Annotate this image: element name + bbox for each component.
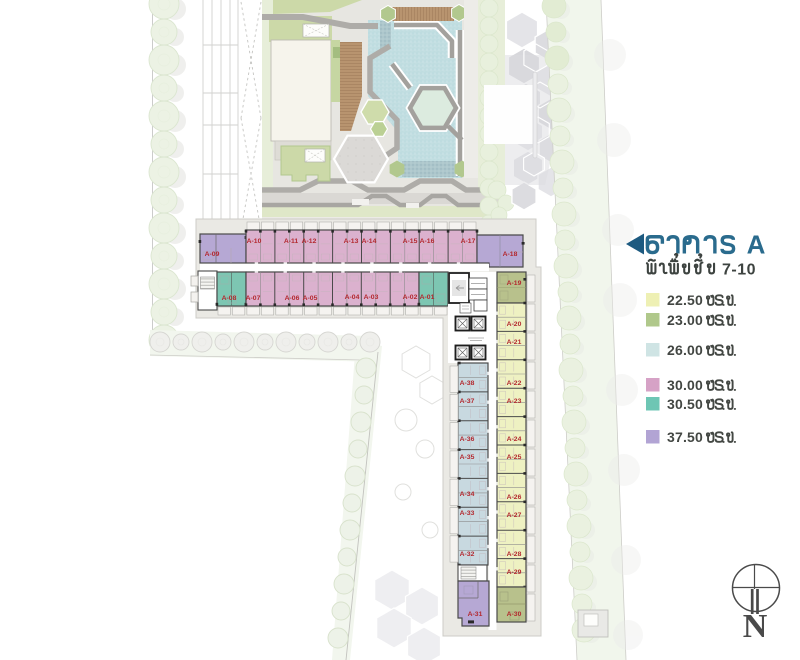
svg-text:26.00: 26.00 [667, 342, 703, 358]
svg-text:37.50: 37.50 [667, 429, 703, 445]
svg-text:A-17: A-17 [461, 238, 476, 245]
svg-text:A-21: A-21 [507, 339, 522, 346]
svg-text:A-24: A-24 [507, 436, 522, 443]
svg-text:30.00: 30.00 [667, 377, 703, 393]
svg-text:A-10: A-10 [247, 238, 262, 245]
svg-text:A-29: A-29 [507, 569, 522, 576]
svg-text:A-22: A-22 [507, 380, 522, 387]
svg-text:23.00: 23.00 [667, 312, 703, 328]
svg-text:A-07: A-07 [246, 295, 261, 302]
svg-text:A-09: A-09 [205, 251, 220, 258]
svg-text:A-04: A-04 [345, 294, 360, 301]
svg-text:30.50: 30.50 [667, 396, 703, 412]
svg-text:A-19: A-19 [507, 280, 522, 287]
svg-text:N: N [743, 608, 768, 645]
svg-text:A-18: A-18 [503, 251, 518, 258]
svg-text:A-16: A-16 [420, 238, 435, 245]
svg-text:A-36: A-36 [460, 436, 475, 443]
svg-text:A-27: A-27 [507, 512, 522, 519]
svg-text:A-13: A-13 [344, 238, 359, 245]
svg-text:A-05: A-05 [303, 295, 318, 302]
svg-text:A-28: A-28 [507, 551, 522, 558]
svg-text:A-25: A-25 [507, 454, 522, 461]
svg-text:A-01: A-01 [420, 294, 435, 301]
svg-text:A-38: A-38 [460, 380, 475, 387]
svg-text:22.50: 22.50 [667, 292, 703, 308]
svg-text:A-08: A-08 [222, 295, 237, 302]
svg-text:A-23: A-23 [507, 398, 522, 405]
svg-text:A-15: A-15 [403, 238, 418, 245]
svg-text:A-12: A-12 [302, 238, 317, 245]
svg-text:A: A [747, 230, 766, 260]
svg-text:A-06: A-06 [285, 295, 300, 302]
svg-text:A-02: A-02 [403, 294, 418, 301]
svg-text:A-33: A-33 [460, 510, 475, 517]
svg-text:A-11: A-11 [284, 238, 299, 245]
svg-text:A-14: A-14 [362, 238, 377, 245]
svg-text:A-30: A-30 [507, 611, 522, 618]
svg-text:A-32: A-32 [460, 551, 475, 558]
svg-text:A-26: A-26 [507, 494, 522, 501]
svg-text:A-34: A-34 [460, 491, 475, 498]
svg-text:A-31: A-31 [468, 611, 483, 618]
svg-text:A-37: A-37 [460, 398, 475, 405]
svg-text:7-10: 7-10 [722, 262, 756, 279]
svg-text:A-35: A-35 [460, 454, 475, 461]
svg-text:A-20: A-20 [507, 321, 522, 328]
svg-text:A-03: A-03 [364, 294, 379, 301]
